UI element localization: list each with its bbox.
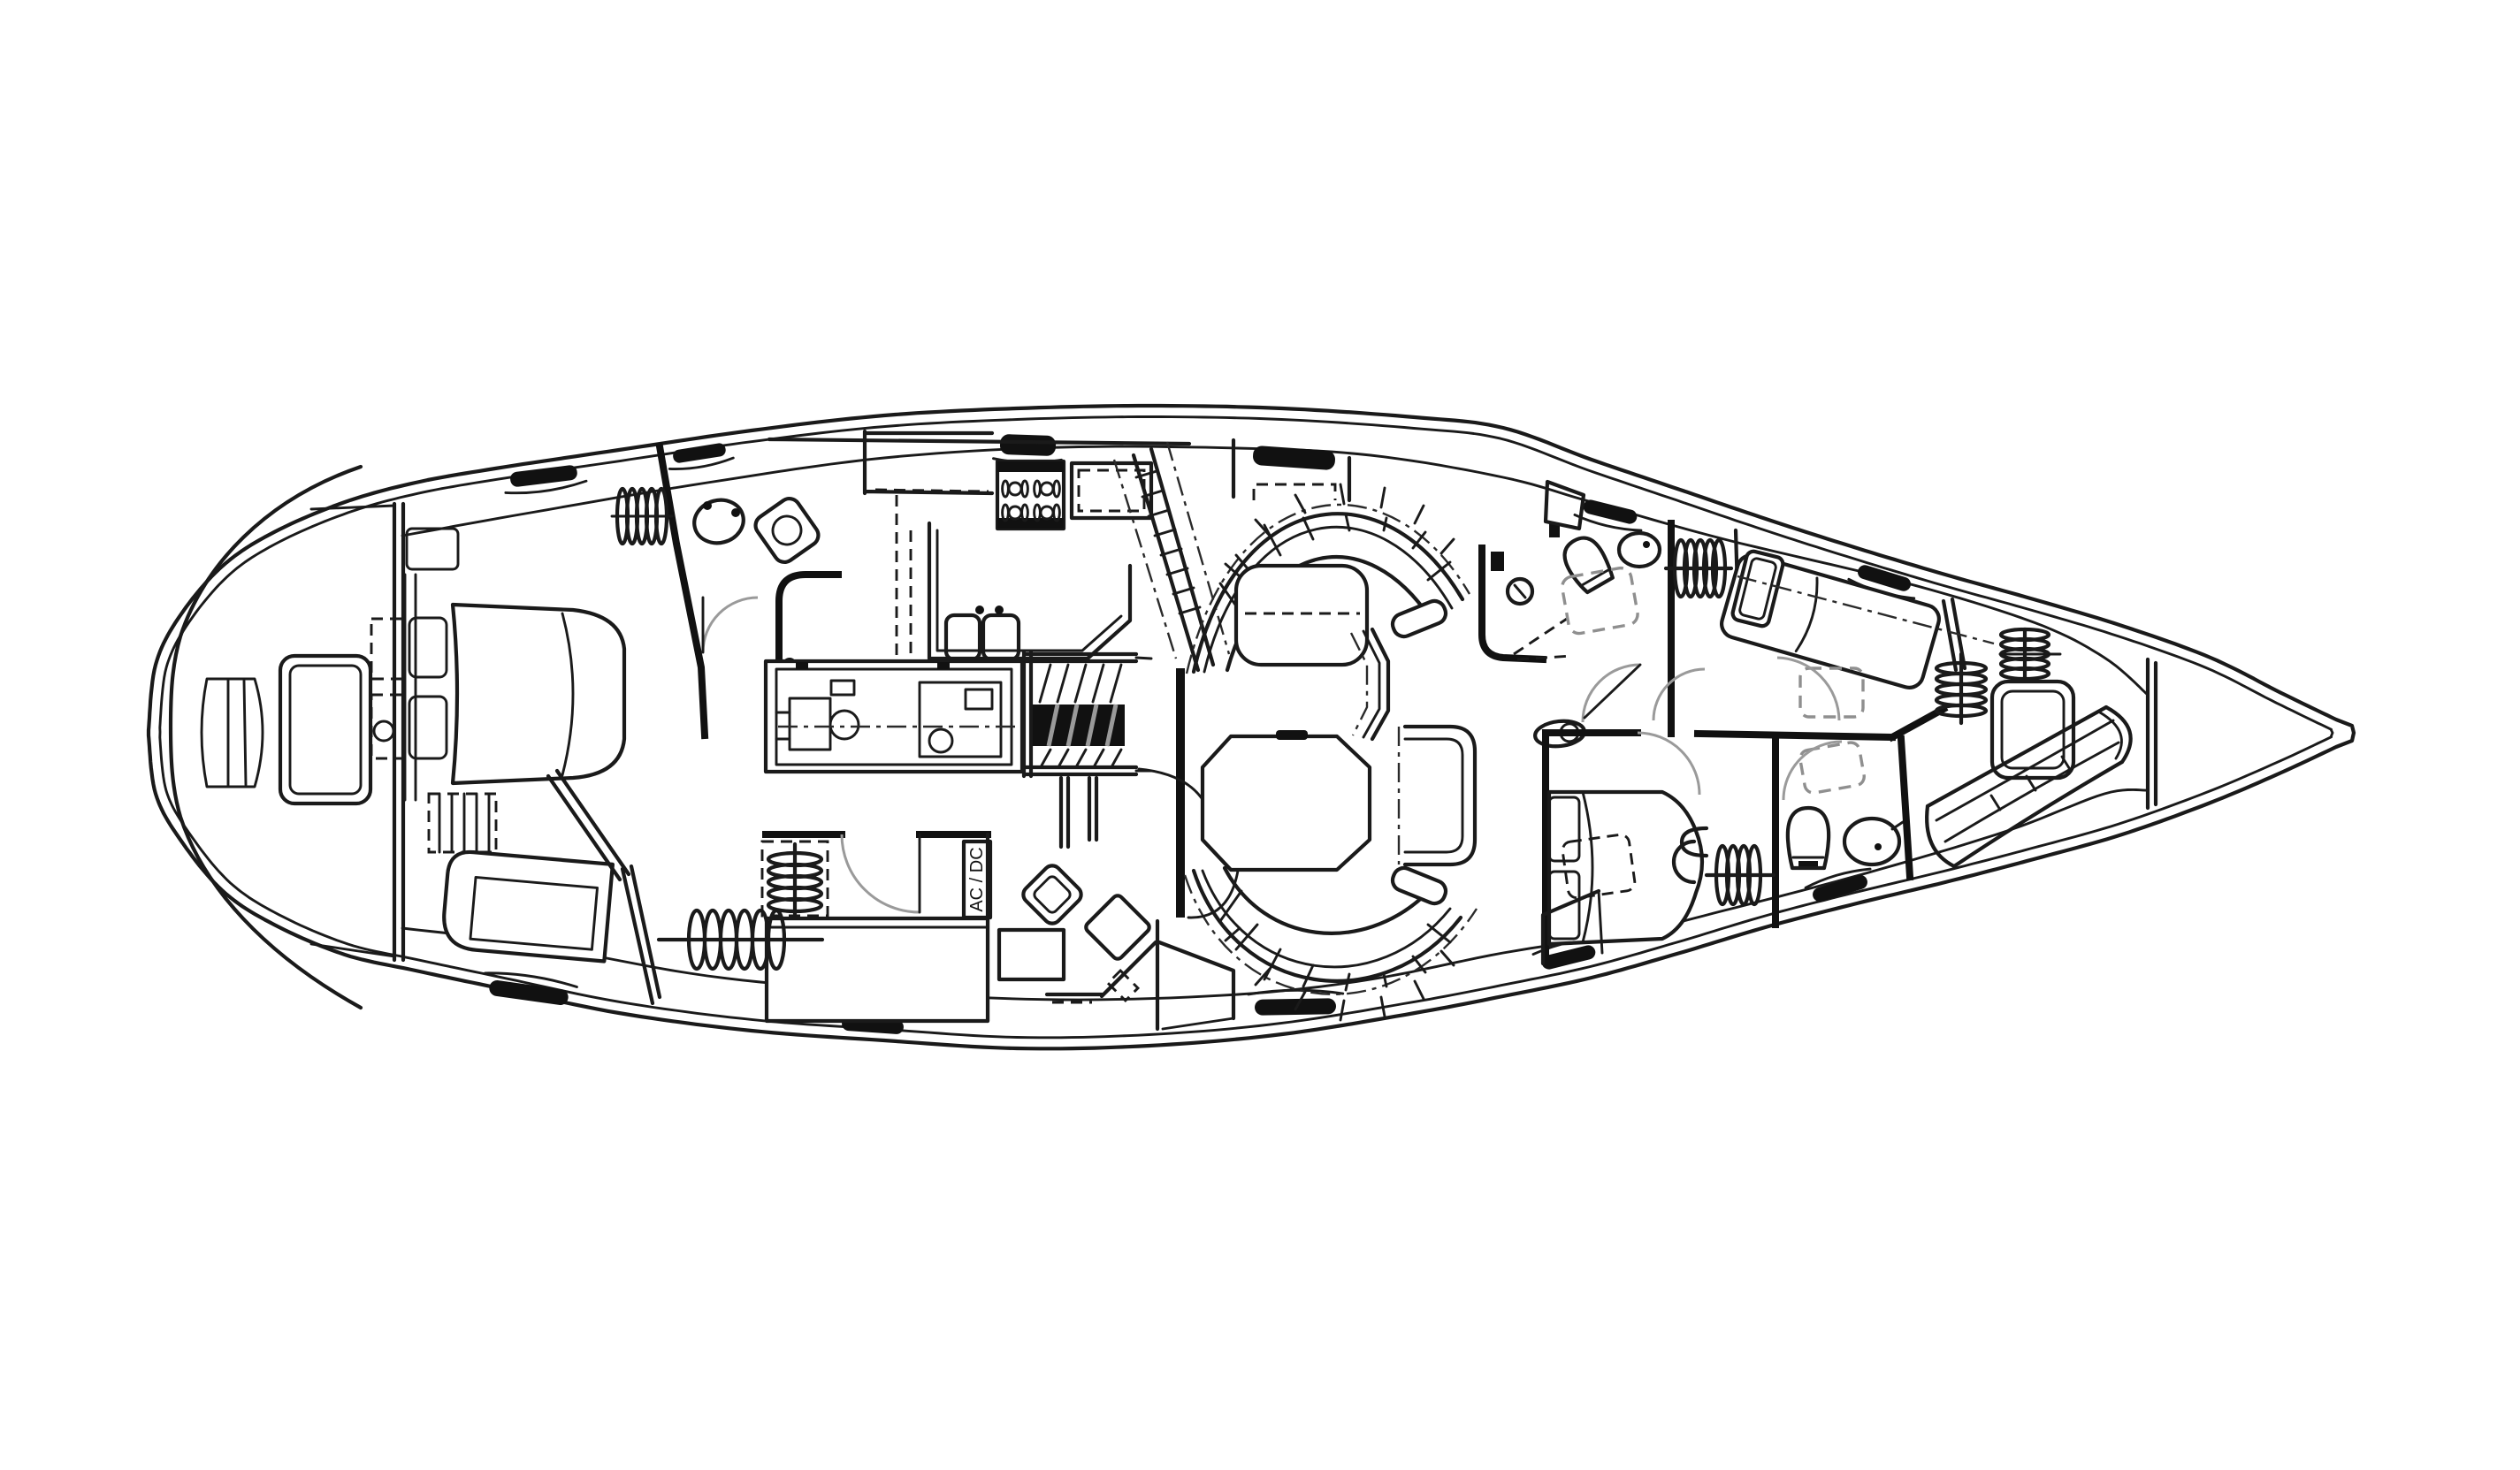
svg-text:AC / DC: AC / DC xyxy=(967,847,987,911)
